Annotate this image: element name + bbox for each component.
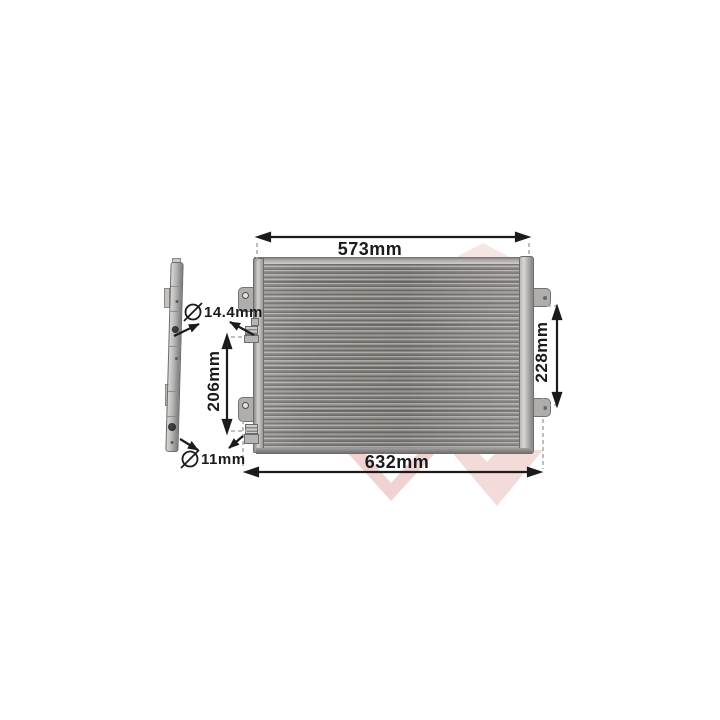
upper-port-connector: [245, 326, 258, 335]
side-view-seam: [169, 346, 180, 347]
side-view-seam: [171, 286, 182, 287]
lower-port-connector: [245, 424, 258, 434]
dim-label-lower-port-diameter: 11mm: [201, 452, 246, 467]
bracket-hole: [242, 292, 249, 299]
dim-label-left-height: 206mm: [205, 326, 223, 436]
side-view-rivet: [175, 357, 178, 360]
side-view-seam: [170, 311, 181, 312]
side-view-lower-port-hole: [168, 423, 176, 431]
dim-label-top-width: 573mm: [312, 240, 428, 258]
product-screenshot: { "product_figure": { "dimension_labels"…: [0, 0, 720, 720]
watermark-right-diamond: [450, 450, 543, 506]
side-view-upper-port-hole: [172, 326, 179, 333]
side-view-seam: [168, 391, 179, 392]
side-view-seam: [167, 416, 178, 417]
lower-port-flange: [244, 434, 259, 444]
condenser-core-fins: [262, 264, 520, 450]
upper-port-flange: [244, 335, 259, 343]
dim-label-right-height: 228mm: [533, 297, 551, 407]
side-view-rivet: [176, 300, 179, 303]
side-view-rivet: [171, 441, 174, 444]
product-figure: 573mm 632mm 228mm 206mm 14.4mm 11mm: [0, 0, 720, 720]
bracket-hole: [242, 402, 249, 409]
dim-label-upper-port-diameter: 14.4mm: [204, 305, 263, 320]
dim-label-bottom-width: 632mm: [339, 453, 455, 471]
